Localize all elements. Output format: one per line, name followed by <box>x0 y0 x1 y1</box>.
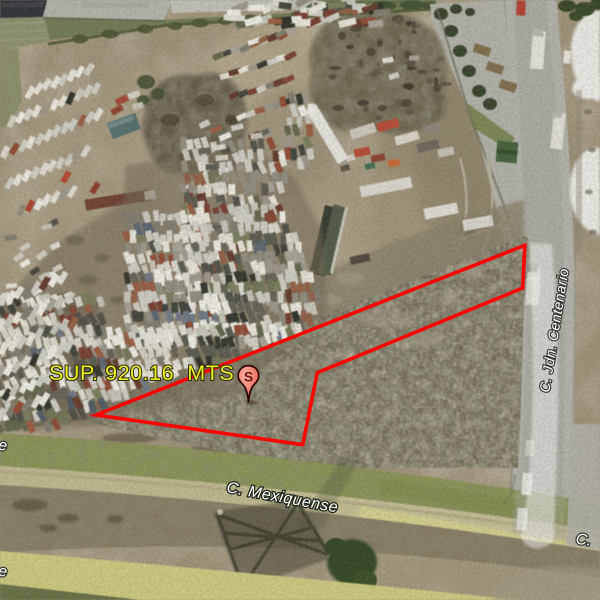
svg-text:C.: C. <box>575 531 593 550</box>
svg-text:SUP. 920.16 MTS: SUP. 920.16 MTS <box>49 361 234 385</box>
svg-text:S: S <box>244 369 253 385</box>
